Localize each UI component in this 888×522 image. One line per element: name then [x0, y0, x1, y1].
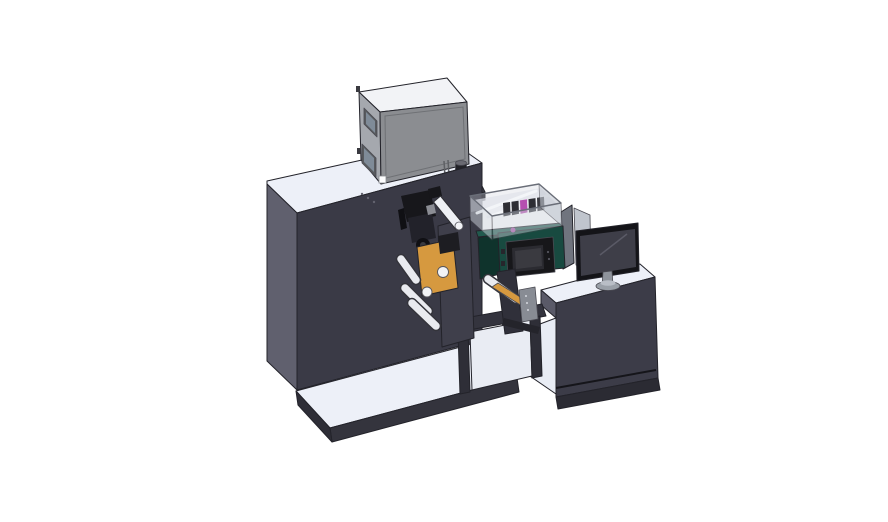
panel-button-2 — [548, 258, 550, 260]
tower-left-face — [267, 184, 297, 390]
bracket-dot-1 — [525, 295, 527, 297]
cad-render-viewport — [0, 0, 888, 522]
hinge-lower — [357, 148, 361, 154]
seam-dot-2 — [367, 197, 369, 199]
seam-dot-3 — [373, 201, 375, 203]
bracket-dot-2 — [526, 302, 528, 304]
nip-roller-end — [455, 222, 463, 230]
monitor-base-top — [601, 280, 616, 286]
canister-cap — [456, 161, 467, 166]
panel-button-1 — [547, 251, 549, 253]
roller-end-cap-2 — [422, 287, 432, 297]
control-panel-screen — [515, 248, 542, 269]
seam-dot-1 — [361, 193, 363, 195]
engine-clip-lower — [501, 261, 505, 266]
machine-render — [0, 0, 888, 522]
corner-label — [379, 176, 386, 183]
hinge-upper — [356, 86, 360, 92]
roller-end-cap-1 — [438, 267, 449, 278]
engine-clip-upper — [501, 249, 505, 254]
rewind-sensor-bracket — [519, 287, 538, 322]
top-cabinet — [356, 78, 469, 184]
bracket-dot-3 — [527, 309, 529, 311]
